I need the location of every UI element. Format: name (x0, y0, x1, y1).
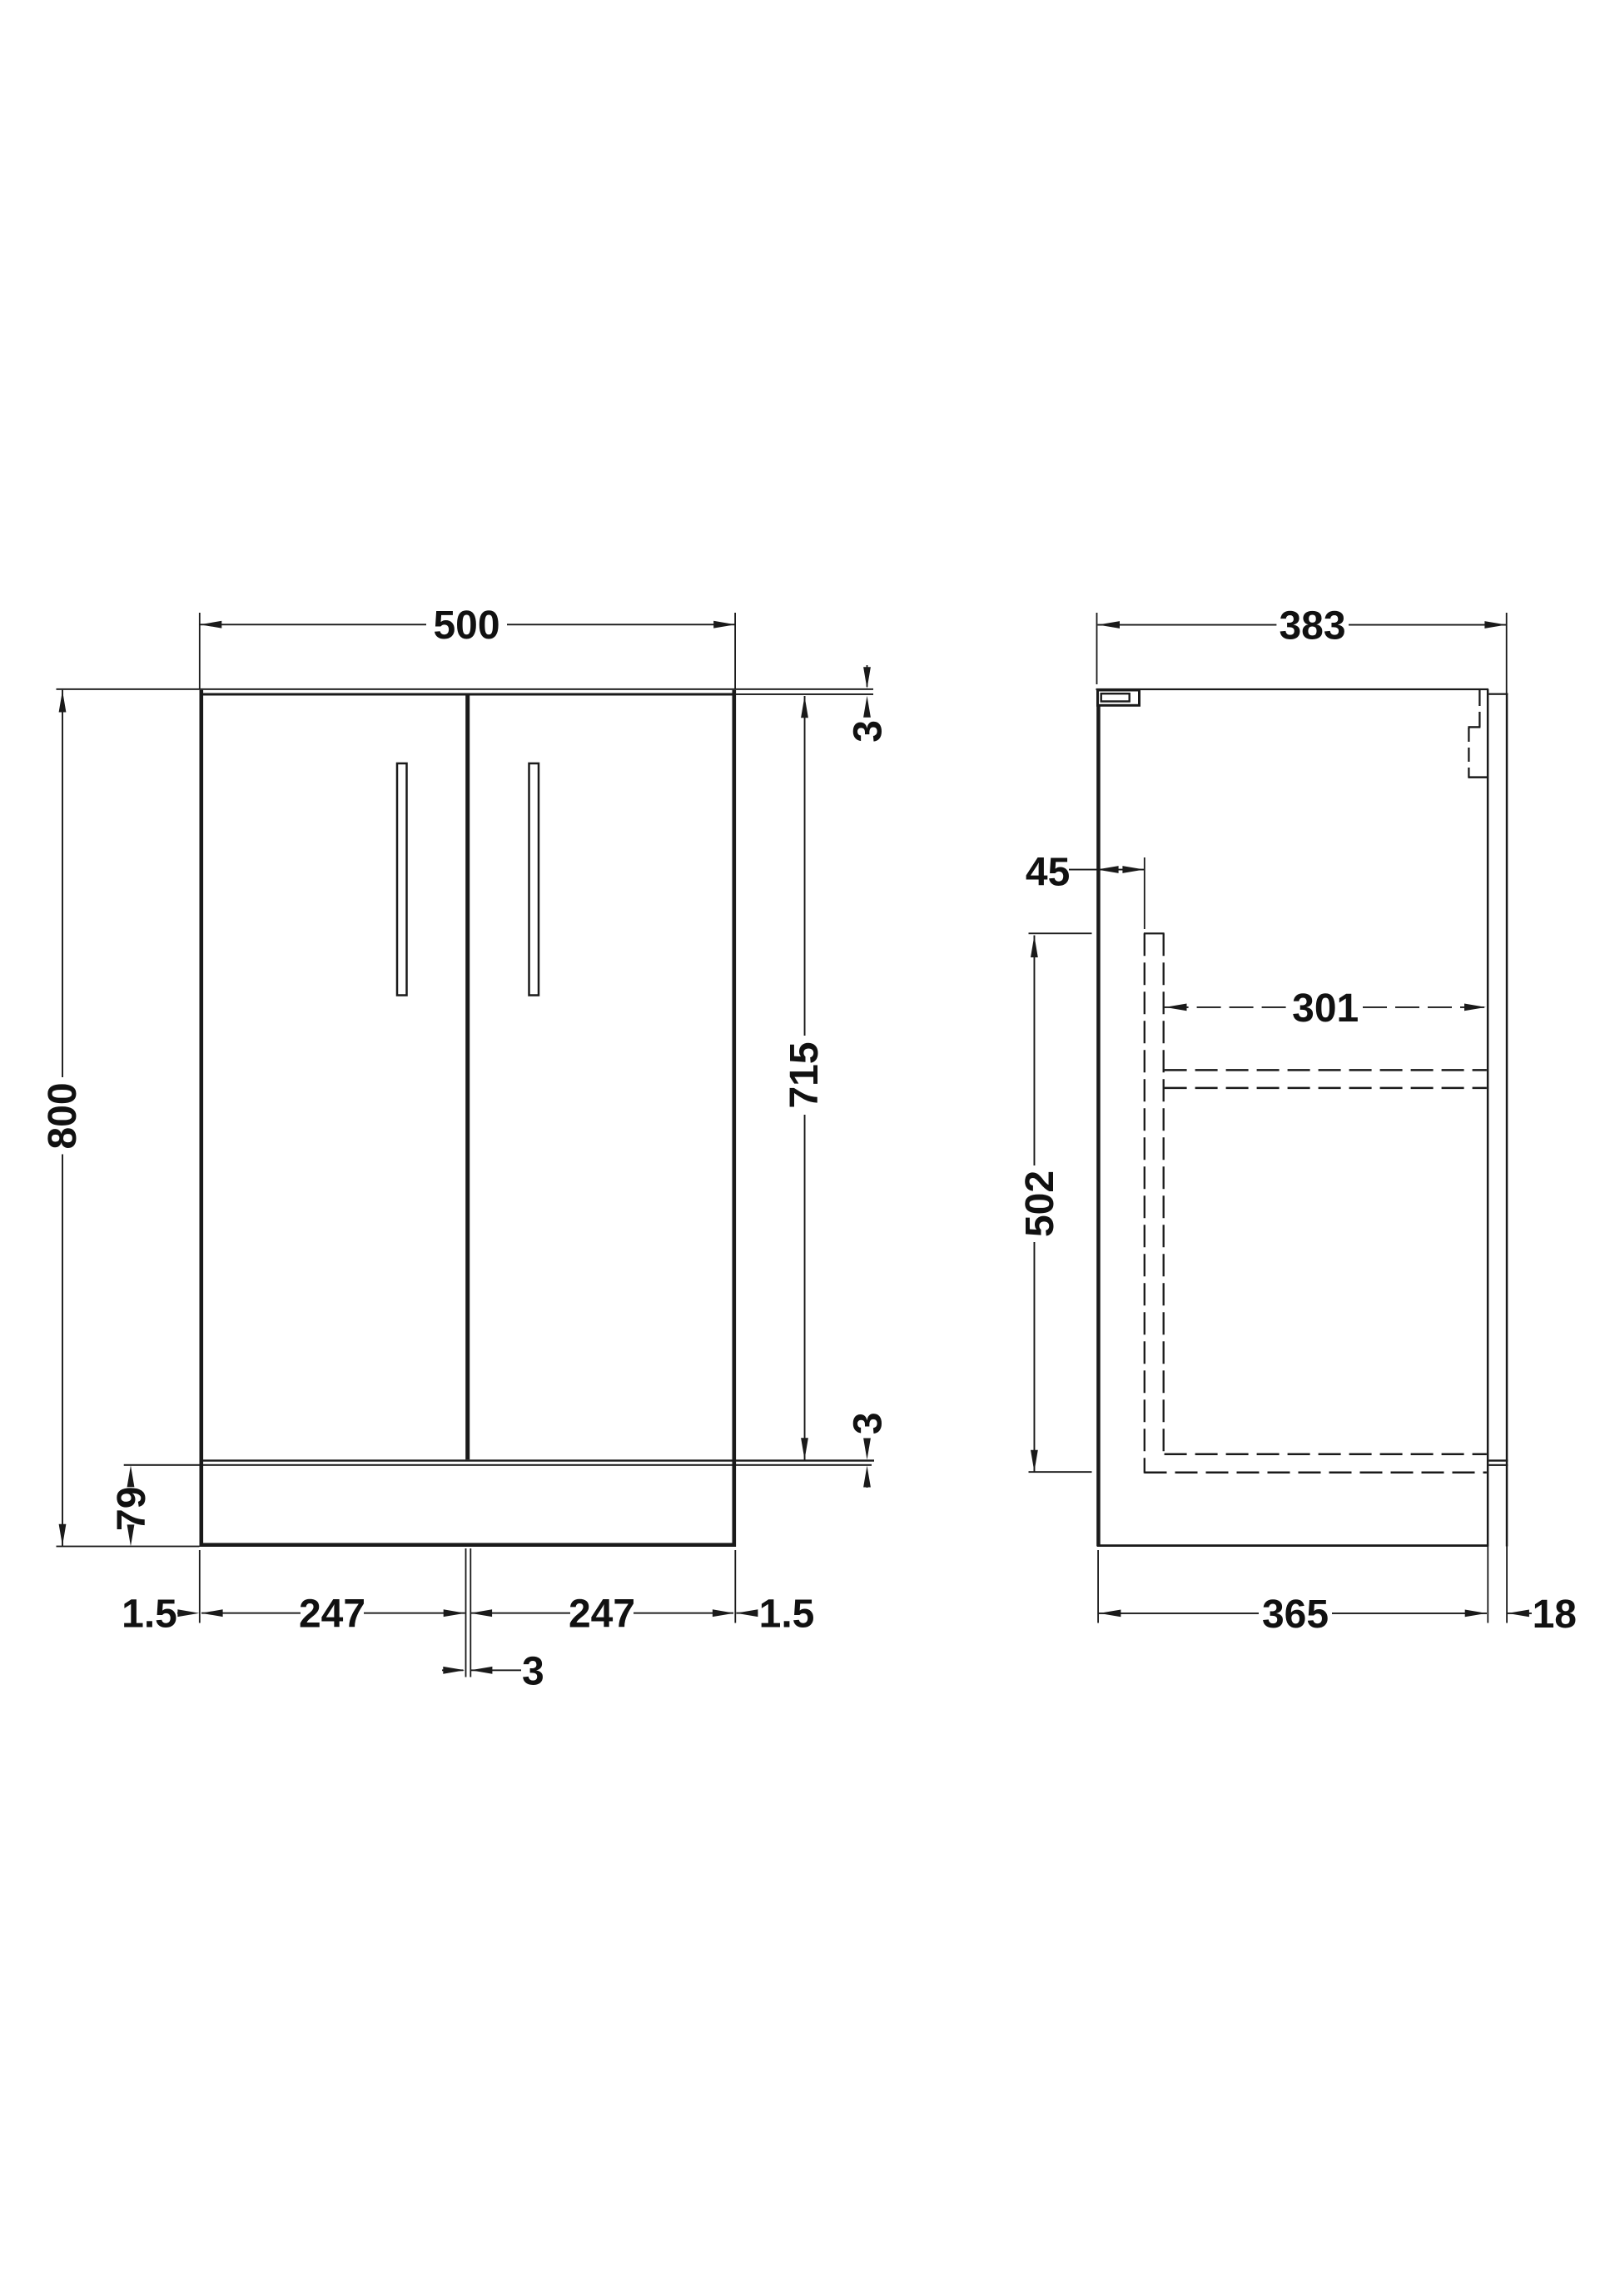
svg-text:3: 3 (522, 1649, 544, 1693)
svg-text:383: 383 (1279, 604, 1345, 649)
svg-text:79: 79 (110, 1487, 154, 1531)
svg-text:800: 800 (41, 1082, 85, 1149)
svg-text:500: 500 (433, 604, 499, 648)
svg-text:3: 3 (846, 720, 890, 743)
svg-text:247: 247 (569, 1593, 635, 1637)
svg-text:1.5: 1.5 (122, 1593, 177, 1637)
svg-text:3: 3 (846, 1412, 890, 1434)
svg-text:502: 502 (1018, 1170, 1062, 1237)
svg-text:715: 715 (783, 1041, 827, 1108)
svg-text:45: 45 (1026, 851, 1070, 895)
svg-text:365: 365 (1262, 1593, 1329, 1637)
svg-text:18: 18 (1533, 1593, 1577, 1637)
svg-text:1.5: 1.5 (759, 1593, 815, 1637)
svg-text:301: 301 (1292, 986, 1359, 1031)
svg-text:247: 247 (299, 1593, 365, 1637)
